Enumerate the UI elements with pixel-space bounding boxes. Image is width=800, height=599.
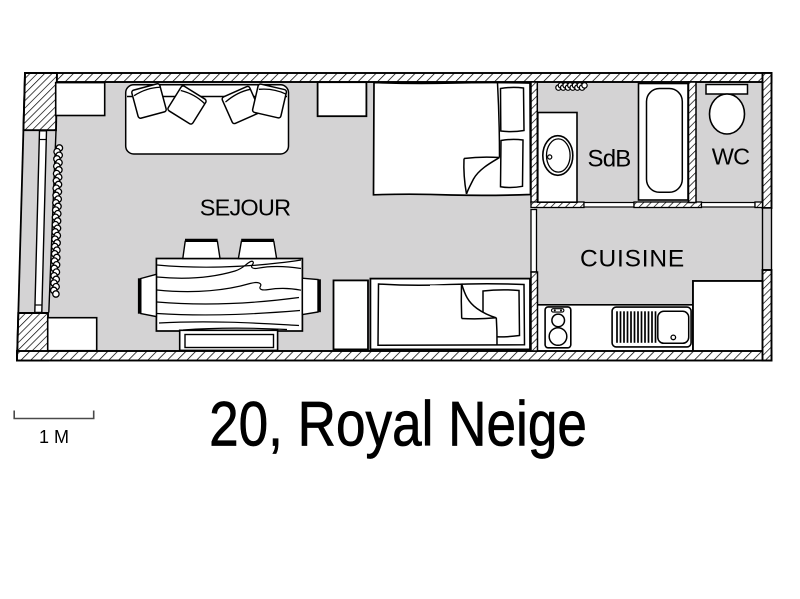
svg-text:20, Royal Neige: 20, Royal Neige — [209, 389, 587, 459]
svg-text:WC: WC — [712, 144, 750, 170]
svg-text:CUISINE: CUISINE — [580, 246, 685, 273]
svg-text:1 M: 1 M — [39, 427, 69, 447]
svg-text:SdB: SdB — [588, 146, 631, 173]
svg-text:SEJOUR: SEJOUR — [200, 195, 291, 221]
